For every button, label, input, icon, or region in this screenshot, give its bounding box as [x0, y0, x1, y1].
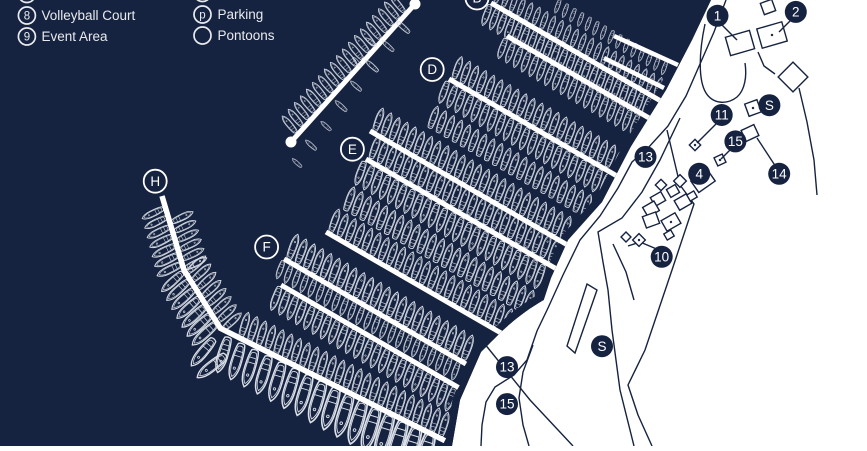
svg-text:Event Area: Event Area [42, 29, 109, 44]
svg-text:Parking: Parking [218, 7, 264, 22]
svg-text:E: E [348, 142, 357, 157]
svg-text:p: p [199, 10, 205, 22]
svg-text:15: 15 [728, 134, 743, 149]
svg-text:13: 13 [638, 150, 653, 165]
svg-text:S: S [597, 339, 606, 354]
svg-text:13: 13 [499, 360, 514, 375]
svg-text:S: S [765, 98, 774, 113]
svg-text:9: 9 [24, 32, 30, 44]
svg-text:Volleyball Court: Volleyball Court [42, 8, 136, 23]
svg-text:15: 15 [499, 397, 514, 412]
svg-text:2: 2 [792, 5, 800, 20]
svg-text:14: 14 [772, 166, 788, 181]
svg-text:H: H [150, 174, 160, 189]
svg-text:1: 1 [714, 8, 722, 23]
svg-text:8: 8 [24, 11, 30, 23]
svg-text:D: D [427, 62, 437, 77]
svg-text:Pontoons: Pontoons [218, 28, 275, 43]
svg-text:10: 10 [654, 249, 669, 264]
svg-text:4: 4 [695, 166, 703, 181]
svg-text:11: 11 [715, 108, 729, 123]
svg-text:B: B [472, 0, 481, 6]
svg-text:F: F [262, 240, 270, 255]
